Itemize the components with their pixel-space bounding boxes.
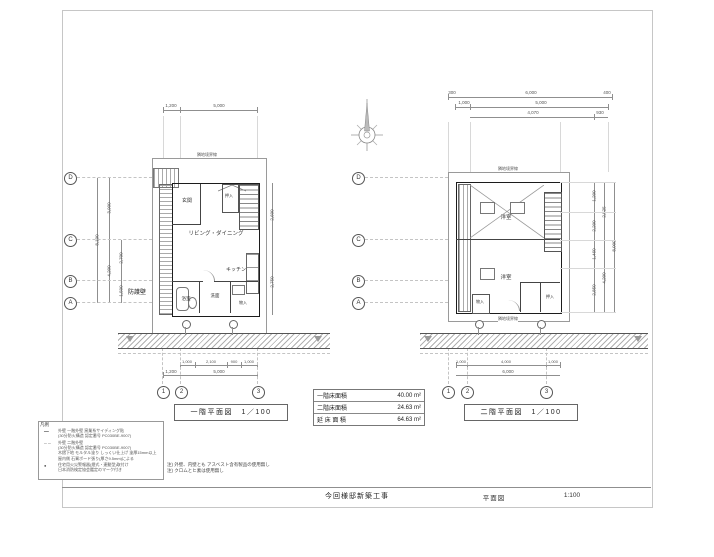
dim-label: 5,000	[213, 369, 224, 374]
grid-bubble-d: D	[352, 172, 365, 185]
grid-line	[365, 280, 448, 281]
north-arrow-icon	[349, 97, 385, 153]
legend-title: 凡例	[40, 422, 49, 428]
dim-tick	[470, 104, 471, 110]
dimension-line	[180, 365, 257, 366]
grid-line	[365, 239, 448, 240]
grid-bubble-2: 2	[461, 386, 474, 399]
drawing-scale: 1:100	[564, 492, 580, 499]
grid-line	[77, 177, 152, 178]
table-row: 延 床 面 積 64.63 m²	[314, 414, 424, 425]
drain-icon	[182, 320, 191, 329]
extension-line	[560, 212, 616, 213]
ground-dashed-line	[420, 353, 648, 354]
dim-tick	[163, 372, 164, 378]
section-mark-icon	[126, 336, 134, 342]
dim-label: 8,100	[95, 234, 100, 245]
dim-label: 4,200	[107, 265, 112, 276]
extension-line	[560, 122, 561, 172]
grid-line	[77, 302, 152, 303]
dim-label: 8,000	[612, 240, 617, 251]
legend-text: 外壁 一階外壁 窯業系サイディング貼 (30分防火構造 認定番号 PC030BE…	[58, 428, 160, 438]
section-mark-icon	[314, 336, 322, 342]
dim-label: 5,000	[535, 100, 546, 105]
room-label-mono: 物入	[476, 299, 484, 305]
legend-symbol-dot: ●	[44, 463, 54, 468]
plan1-caption: 一階平面図 1／100	[174, 404, 288, 421]
kitchen-counter	[246, 253, 259, 294]
dim-label: 6,000	[502, 369, 513, 374]
extension-line	[560, 240, 616, 241]
drain-stem	[232, 327, 233, 335]
room-label-mono: 物入	[239, 300, 247, 306]
dimension-line	[163, 375, 257, 376]
dim-label: 1,200	[592, 190, 597, 201]
grid-bubble-c: C	[352, 234, 365, 247]
grid-line	[365, 302, 448, 303]
dim-label: 2,850	[592, 284, 597, 295]
drain-icon	[537, 320, 546, 329]
dim-label: 2,750	[270, 276, 275, 287]
area-value: 64.63 m²	[397, 417, 421, 423]
guard-wall-strip	[159, 184, 173, 315]
plan1-boundary-label: 隣地境界線	[197, 152, 217, 158]
plan2-boundary-label-bottom: 隣地境界線	[498, 316, 518, 322]
dim-label: 4,000	[501, 359, 511, 364]
area-value: 40.00 m²	[397, 393, 421, 399]
dim-tick	[608, 104, 609, 110]
extension-line	[257, 116, 258, 158]
drain-stem	[478, 327, 479, 335]
grid-bubble-2: 2	[175, 386, 188, 399]
drawing-sheet: 今回様邸新築工事 平面図 1:100 隣地境界線 玄関 リビング・ダイニング キ…	[0, 0, 714, 557]
section-mark-icon	[634, 336, 642, 342]
ground-hatch-band	[118, 333, 330, 349]
asbestos-note: 注) 外壁、内壁とも アスベスト含有製品の使用無し 注) クロムとヒ素は使用無し	[167, 462, 307, 475]
dim-label: 4,070	[527, 110, 538, 115]
dim-label: 4,200	[602, 272, 607, 283]
dimension-line	[109, 178, 110, 303]
room-label-living-dining: リビング・ダイニング	[188, 229, 243, 237]
grid-line	[77, 280, 152, 281]
extension-line	[180, 116, 181, 158]
area-value: 24.63 m²	[397, 405, 421, 411]
room-label-genkan: 玄関	[182, 197, 192, 204]
plan2-boundary-label-top: 隣地境界線	[498, 166, 518, 172]
grid-bubble-1: 1	[157, 386, 170, 399]
table-row: 二階床面積 24.63 m²	[314, 402, 424, 414]
dim-label: 2,600	[270, 209, 275, 220]
dimension-line	[163, 110, 257, 111]
room-label-kitchen: キッチン	[226, 266, 246, 273]
area-label: 延 床 面 積	[317, 415, 346, 424]
table-row: 一階床面積 40.00 m²	[314, 390, 424, 402]
dim-label: 1,500	[119, 285, 124, 296]
dim-label: 5,000	[213, 103, 224, 108]
legend-text: 外壁 二階外壁 (30分防火構造 認定番号 PC030BE-9007) 木摺下地…	[58, 440, 160, 461]
drain-stem	[540, 327, 541, 335]
washbasin	[232, 285, 245, 295]
stairs-1f	[239, 184, 259, 230]
room-label-western-room-lower: 洋室	[500, 273, 511, 281]
dimension-line	[456, 375, 560, 376]
grid-bubble-a: A	[64, 297, 77, 310]
stairs-2f	[544, 192, 562, 252]
dim-label: 1,000	[458, 100, 469, 105]
dim-label: 1,200	[165, 369, 176, 374]
dim-tick	[257, 107, 258, 113]
drawing-title: 平面図	[483, 492, 506, 502]
room-label-western-room-upper: 洋室	[500, 213, 511, 221]
extension-line	[560, 182, 616, 183]
dim-tick	[594, 114, 595, 120]
closet-wall	[520, 282, 521, 312]
section-mark-icon	[424, 336, 432, 342]
dim-label: 2,200	[592, 220, 597, 231]
dim-tick	[612, 94, 613, 100]
dimension-line	[470, 117, 608, 118]
area-label: 一階床面積	[317, 391, 347, 400]
dim-tick	[560, 362, 561, 368]
dim-label: 400	[603, 90, 611, 95]
grid-bubble-a: A	[352, 297, 365, 310]
dim-label: 300	[448, 90, 456, 95]
dim-label: 2,700	[119, 252, 124, 263]
ground-hatch-band	[420, 333, 648, 349]
grid-bubble-3: 3	[252, 386, 265, 399]
bath-wall	[199, 282, 200, 313]
grid-line	[77, 239, 152, 240]
grid-bubble-1: 1	[442, 386, 455, 399]
dimension-line	[456, 365, 560, 366]
grid-bubble-b: B	[64, 275, 77, 288]
dimension-line	[604, 182, 605, 312]
grid-bubble-3: 3	[540, 386, 553, 399]
closet-wall	[540, 282, 541, 312]
desk	[480, 202, 495, 214]
dim-label: 1,460	[592, 248, 597, 259]
dim-tick	[241, 362, 242, 368]
grid-line	[365, 177, 448, 178]
dim-label: 1,000	[244, 359, 254, 364]
room-label-oshiire: 押入	[225, 193, 233, 199]
extension-line	[608, 122, 609, 172]
dimension-line	[455, 107, 608, 108]
guard-wall-label: 防護壁	[128, 287, 146, 296]
dim-label: 1,000	[182, 359, 192, 364]
dim-tick	[180, 107, 181, 113]
dim-label: 2,100	[206, 359, 216, 364]
dim-label: 900	[231, 359, 238, 364]
genkan-wall	[172, 224, 201, 225]
area-label: 二階床面積	[317, 403, 347, 412]
room-label-senmen: 洗面	[211, 293, 220, 299]
genkan-wall	[200, 184, 201, 225]
desk	[480, 268, 495, 280]
extension-line	[470, 122, 471, 172]
drain-icon	[229, 320, 238, 329]
dimension-line	[272, 183, 273, 315]
dim-label: 930	[596, 110, 604, 115]
dim-tick	[195, 362, 196, 368]
ground-dashed-line	[118, 353, 330, 354]
dim-label: 6,000	[525, 90, 536, 95]
drain-stem	[185, 327, 186, 335]
grid-bubble-d: D	[64, 172, 77, 185]
extension-line	[163, 116, 164, 158]
dim-label: 3,900	[107, 202, 112, 213]
room-label-oshiire: 押入	[546, 294, 554, 300]
project-title: 今回様邸新築工事	[325, 491, 389, 501]
grid-bubble-c: C	[64, 234, 77, 247]
partition-wall	[214, 281, 258, 282]
dim-label: 1,000	[456, 359, 466, 364]
plan2-caption: 二階平面図 1／100	[464, 404, 578, 421]
grid-bubble-b: B	[352, 275, 365, 288]
dim-tick	[227, 362, 228, 368]
extension-line	[560, 312, 616, 313]
legend-text: 住宅用火災警報器(煙式・連動型)取付け 日本消防検定協会鑑定のマーク付き	[58, 462, 160, 472]
extension-line	[560, 268, 616, 269]
legend-symbol-solid-line: ━━	[44, 429, 54, 434]
extension-line	[448, 122, 449, 172]
room-label-bath: 浴室	[182, 296, 191, 302]
desk	[510, 202, 525, 214]
drain-icon	[475, 320, 484, 329]
legend-symbol-dashed-line: ─ ─	[44, 441, 54, 446]
dim-label: 1,000	[548, 359, 558, 364]
dim-label: 1,200	[165, 103, 176, 108]
area-table: 一階床面積 40.00 m² 二階床面積 24.63 m² 延 床 面 積 64…	[313, 389, 425, 426]
dim-tick	[163, 107, 164, 113]
titlebar-divider	[62, 487, 651, 488]
dimension-line	[448, 97, 612, 98]
dim-tick	[455, 104, 456, 110]
